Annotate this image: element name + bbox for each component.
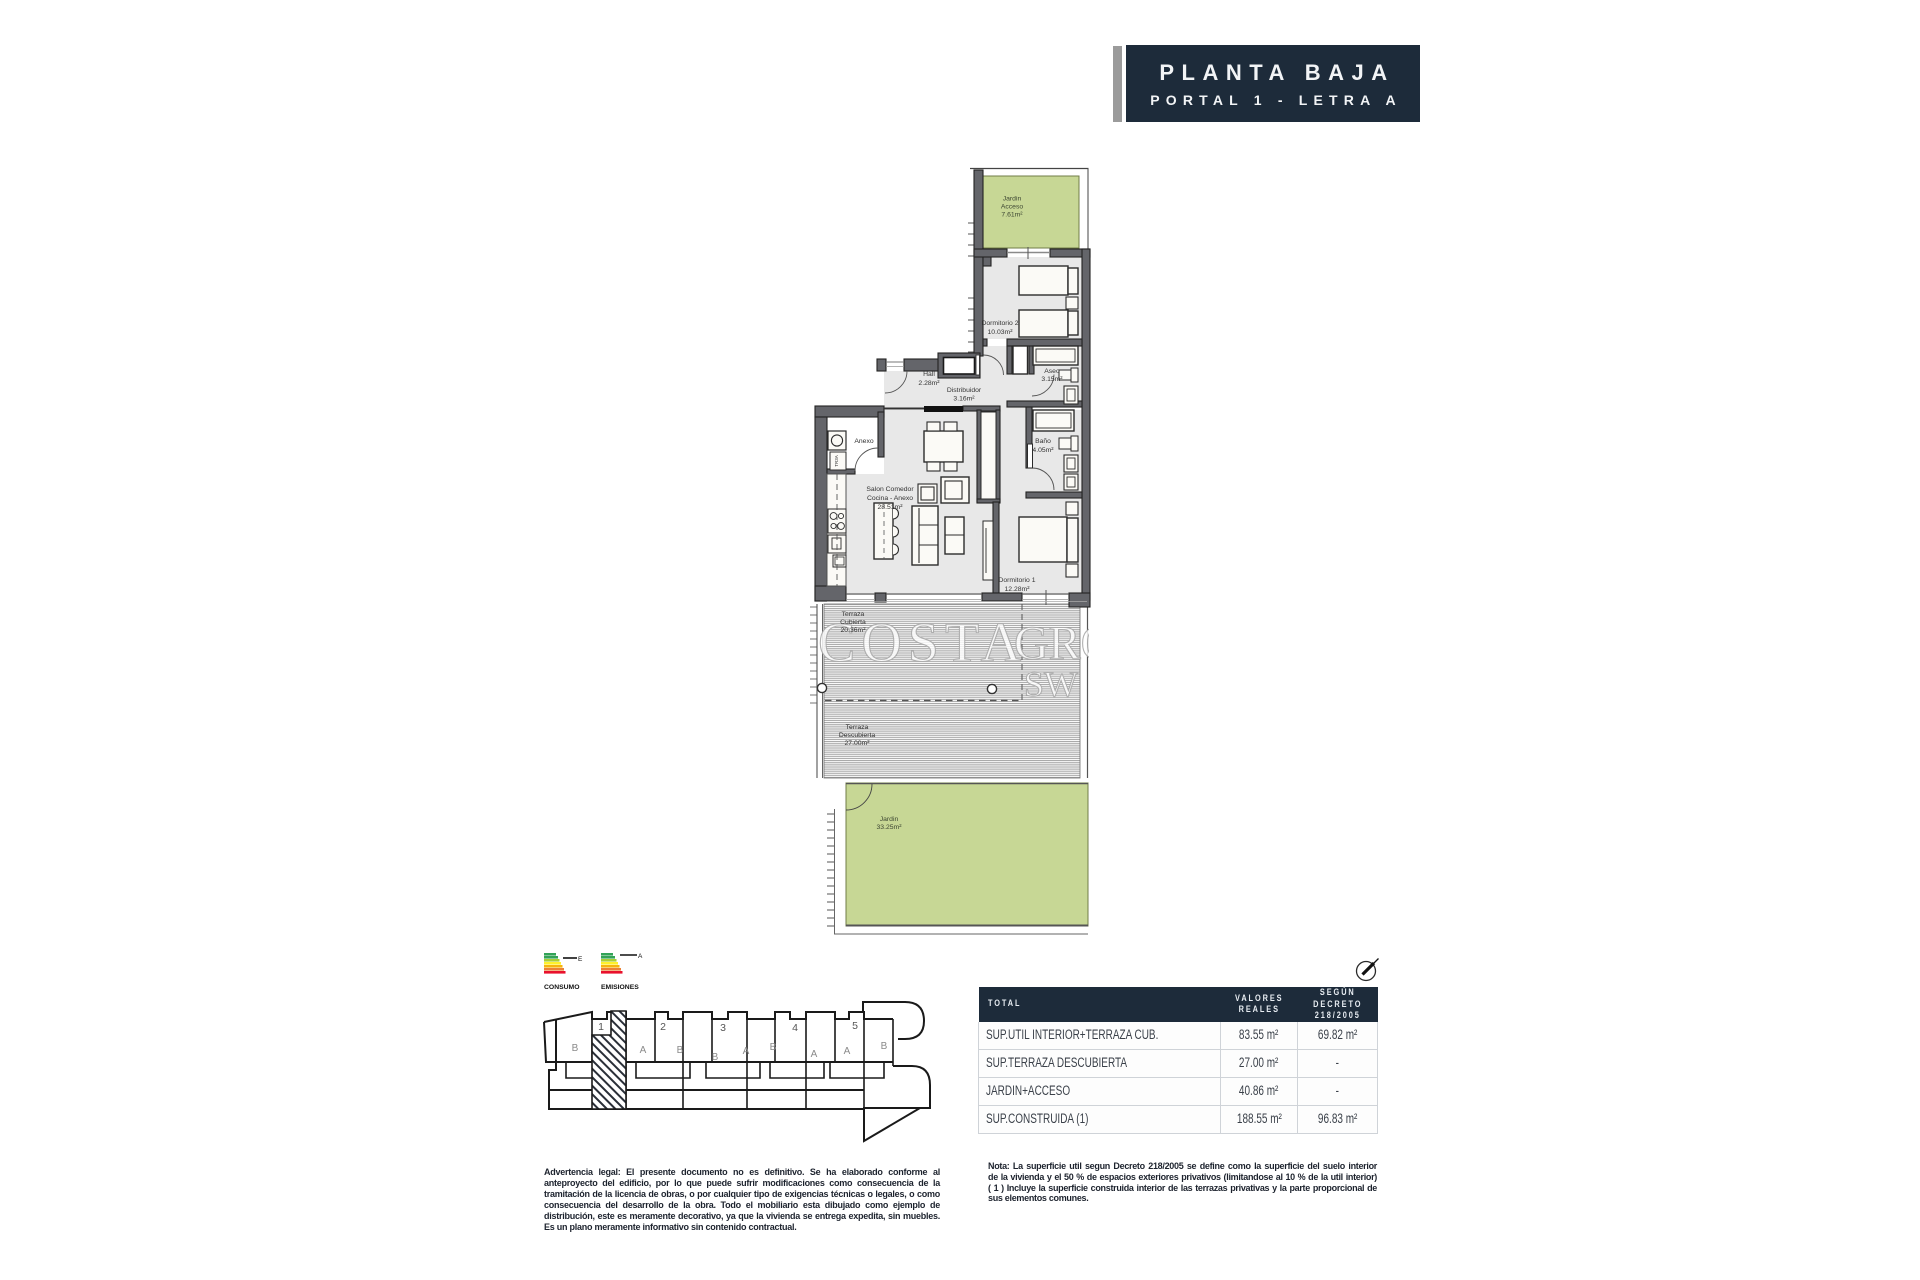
- svg-text:Aseo: Aseo: [1044, 368, 1060, 375]
- svg-text:A: A: [743, 1046, 750, 1057]
- svg-text:Hall: Hall: [923, 371, 935, 378]
- svg-text:A: A: [844, 1046, 851, 1057]
- svg-text:12.28m²: 12.28m²: [1005, 586, 1031, 593]
- svg-text:3.15m²: 3.15m²: [1041, 376, 1063, 383]
- svg-text:A: A: [811, 1049, 818, 1060]
- svg-text:Terraza: Terraza: [842, 611, 865, 618]
- svg-text:Anexo: Anexo: [854, 438, 873, 445]
- svg-text:2.28m²: 2.28m²: [918, 380, 940, 387]
- svg-text:5: 5: [852, 1020, 858, 1032]
- svg-text:27.00m²: 27.00m²: [845, 740, 871, 747]
- svg-text:E: E: [578, 956, 583, 963]
- svg-text:Baño: Baño: [1035, 438, 1051, 445]
- svg-text:B: B: [712, 1052, 719, 1063]
- svg-text:Distribuidor: Distribuidor: [947, 387, 982, 394]
- svg-text:A: A: [638, 953, 643, 960]
- svg-text:2: 2: [660, 1021, 666, 1033]
- svg-text:EMISIONES: EMISIONES: [601, 984, 639, 991]
- svg-text:4: 4: [792, 1022, 798, 1034]
- svg-text:Terraza: Terraza: [846, 724, 869, 731]
- svg-text:20.36m²: 20.36m²: [841, 627, 867, 634]
- svg-text:Jardin: Jardin: [1003, 196, 1022, 203]
- svg-text:3: 3: [720, 1022, 726, 1034]
- svg-text:3.16m²: 3.16m²: [953, 396, 975, 403]
- svg-text:7.61m²: 7.61m²: [1001, 212, 1023, 219]
- svg-text:Cocina - Anexo: Cocina - Anexo: [867, 495, 913, 502]
- svg-text:B: B: [881, 1041, 888, 1052]
- svg-text:10.03m²: 10.03m²: [988, 329, 1014, 336]
- svg-text:28.51m²: 28.51m²: [878, 504, 904, 511]
- svg-text:GRO: GRO: [1014, 617, 1115, 670]
- svg-text:Dormitorio 2: Dormitorio 2: [981, 320, 1018, 327]
- svg-text:Dormitorio 1: Dormitorio 1: [998, 577, 1035, 584]
- svg-text:Acceso: Acceso: [1001, 204, 1024, 211]
- svg-text:Jardin: Jardin: [880, 816, 899, 823]
- svg-text:SW: SW: [1024, 664, 1078, 704]
- svg-text:B: B: [770, 1042, 777, 1053]
- svg-text:CONSUMO: CONSUMO: [544, 984, 580, 991]
- svg-text:33.25m²: 33.25m²: [877, 824, 903, 831]
- svg-text:TR3A: TR3A: [834, 455, 839, 467]
- svg-text:Descubierta: Descubierta: [839, 732, 875, 739]
- svg-text:B: B: [572, 1043, 579, 1054]
- svg-text:4.05m²: 4.05m²: [1032, 447, 1054, 454]
- svg-text:Salon Comedor: Salon Comedor: [866, 486, 914, 493]
- svg-text:A: A: [640, 1045, 647, 1056]
- svg-text:Cubierta: Cubierta: [840, 619, 866, 626]
- svg-text:B: B: [677, 1045, 684, 1056]
- svg-text:1: 1: [598, 1021, 604, 1033]
